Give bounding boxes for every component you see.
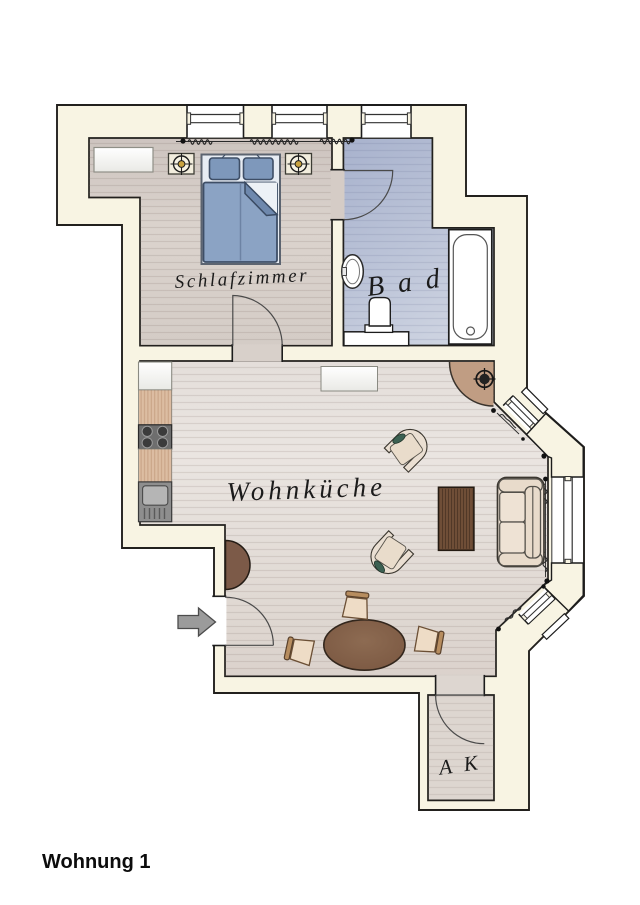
svg-text:Wohnung 1: Wohnung 1 [42, 851, 151, 873]
svg-text:Wohnküche: Wohnküche [226, 471, 386, 507]
